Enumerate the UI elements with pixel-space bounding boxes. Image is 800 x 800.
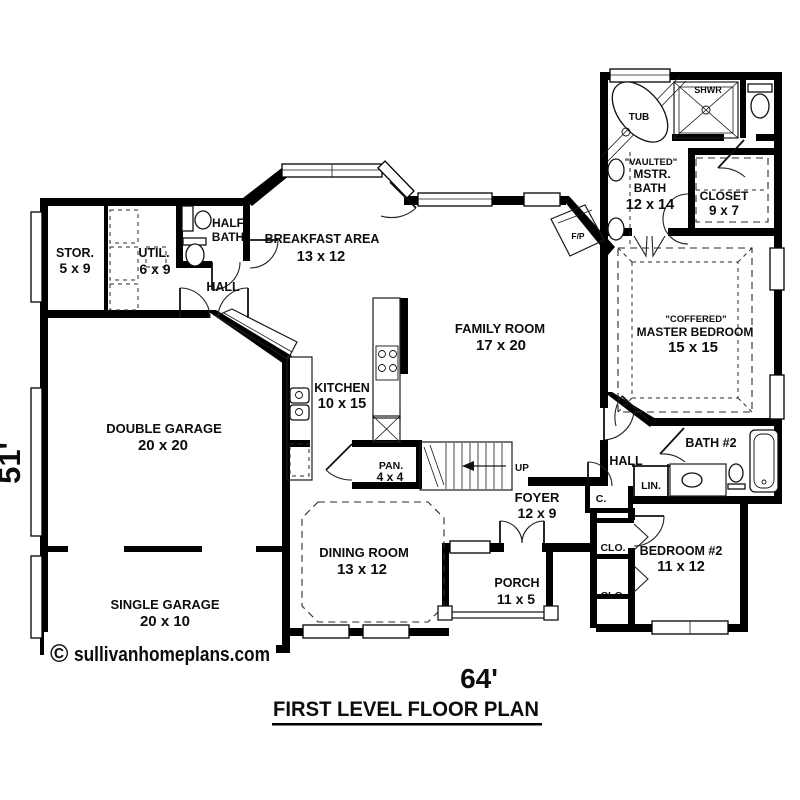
vanity-sink-icon — [608, 159, 624, 181]
floor-plan-page: STOR. 5 x 9 UTIL. 6 x 9 HALF BATH HALL B… — [0, 0, 800, 800]
wall-segment — [590, 554, 634, 559]
garage-header-dash — [256, 546, 284, 552]
window — [303, 625, 349, 638]
window — [450, 541, 490, 553]
wall-segment — [352, 440, 422, 447]
door-front-entry — [500, 521, 544, 543]
room-label-linen: LIN. — [641, 480, 661, 492]
room-label-mstr-bath-2: BATH — [634, 181, 666, 195]
wall-segment — [528, 477, 608, 486]
wall-segment — [104, 206, 108, 310]
wall-segment — [740, 504, 748, 632]
room-dims-stor: 5 x 9 — [59, 260, 90, 276]
kitchen-counters — [216, 298, 400, 480]
porch-structure — [438, 606, 558, 620]
door-pantry — [326, 444, 352, 480]
wall-segment — [650, 418, 782, 426]
room-label-double-garage: DOUBLE GARAGE — [106, 421, 222, 436]
wall-segment — [774, 72, 782, 134]
fixture-label-up: UP — [515, 463, 529, 474]
wall-segment — [40, 198, 250, 206]
room-dims-mstr-bath: 12 x 14 — [626, 197, 674, 213]
toilet-icon — [729, 464, 743, 482]
room-label-bedroom2: BEDROOM #2 — [640, 544, 723, 558]
window — [770, 375, 784, 419]
garage-header-dash — [44, 546, 68, 552]
page-title: FIRST LEVEL FLOOR PLAN — [273, 698, 539, 721]
room-label-porch: PORCH — [494, 576, 539, 590]
door-bath2 — [660, 428, 685, 462]
window — [418, 193, 492, 206]
wall-segment — [416, 440, 422, 489]
window — [770, 248, 784, 290]
wall-segment — [628, 486, 633, 512]
room-dims-breakfast: 13 x 12 — [297, 249, 345, 265]
room-label-dining: DINING ROOM — [319, 545, 409, 560]
room-label-clo-lower: CLO. — [600, 590, 625, 602]
room-label-util: UTIL. — [138, 246, 169, 260]
room-dims-bedroom2: 11 x 12 — [657, 559, 705, 575]
room-label-closet: CLOSET — [700, 189, 749, 203]
room-label-half-bath-1: HALF — [212, 216, 244, 230]
room-dims-porch: 11 x 5 — [497, 591, 535, 607]
wall-segment — [604, 392, 656, 427]
room-dims-dining: 13 x 12 — [337, 561, 387, 578]
wall-segment — [590, 508, 597, 628]
room-dims-foyer: 12 x 9 — [518, 505, 557, 521]
wall-segment — [282, 440, 310, 447]
door-bedroom2 — [634, 516, 664, 546]
toilet-icon — [748, 84, 772, 92]
door-master-bedroom-double — [634, 236, 665, 256]
kitchen-sink-icon — [290, 388, 309, 403]
room-label-family: FAMILY ROOM — [455, 321, 545, 336]
wall-segment — [542, 543, 597, 552]
sink-icon — [182, 206, 193, 231]
room-dims-family: 17 x 20 — [476, 337, 526, 354]
door-closet-bifold — [634, 524, 648, 592]
room-label-breakfast: BREAKFAST AREA — [265, 232, 380, 246]
wall-segment — [282, 356, 290, 648]
wall-segment — [590, 518, 634, 523]
door-family-hall — [604, 408, 634, 440]
wall-segment — [688, 228, 782, 236]
stairs — [420, 442, 512, 490]
porch-column — [438, 606, 452, 620]
half-bath-fixtures — [182, 206, 211, 266]
wall-segment — [40, 310, 210, 318]
fixture-label-tub: TUB — [629, 112, 650, 123]
window — [31, 388, 42, 536]
title-underline — [272, 723, 542, 726]
porch-column — [544, 606, 558, 620]
watermark-text: sullivanhomeplans.com — [74, 644, 270, 666]
fixture-label-shower: SHWR — [694, 85, 722, 95]
dishwasher-icon — [290, 444, 309, 476]
room-label-hall-left: HALL — [206, 280, 240, 294]
room-label-foyer: FOYER — [515, 490, 560, 505]
sink-icon — [682, 473, 702, 487]
fixture-label-fireplace: F/P — [571, 231, 585, 241]
room-dims-master: 15 x 15 — [668, 339, 718, 356]
wall-segment — [756, 134, 782, 141]
room-label-single-garage: SINGLE GARAGE — [110, 597, 219, 612]
wall-segment — [630, 496, 782, 504]
washer-dryer-icons — [110, 210, 166, 310]
wall-segment — [740, 78, 746, 138]
wall-segment — [688, 148, 695, 235]
room-label-kitchen: KITCHEN — [314, 381, 370, 395]
window — [378, 161, 414, 198]
room-dims-util: 6 x 9 — [139, 261, 170, 277]
room-label-master: MASTER BEDROOM — [637, 325, 754, 339]
room-label-bath2: BATH #2 — [685, 436, 736, 450]
room-label-half-bath-2: BATH — [212, 230, 244, 244]
room-dims-kitchen: 10 x 15 — [318, 396, 366, 412]
wall-segment — [628, 548, 635, 628]
dimension-height: 51' — [0, 442, 27, 484]
room-label-hall-right: HALL — [609, 454, 643, 468]
floor-plan-svg: STOR. 5 x 9 UTIL. 6 x 9 HALF BATH HALL B… — [0, 0, 800, 800]
window — [524, 193, 560, 206]
wall-segment — [600, 440, 608, 480]
wall-segment — [400, 298, 408, 374]
room-label-mstr-bath-1: MSTR. — [633, 167, 670, 181]
room-dims-double-garage: 20 x 20 — [138, 437, 188, 454]
stairs-arrowhead — [462, 461, 474, 471]
room-dims-single-garage: 20 x 10 — [140, 613, 190, 630]
room-label-closet-c: C. — [596, 493, 607, 505]
dimension-width: 64' — [460, 663, 498, 694]
room-label-stor: STOR. — [56, 246, 94, 260]
room-label-clo-upper: CLO. — [600, 542, 625, 554]
window — [610, 69, 670, 82]
room-dims-pantry: 4 x 4 — [377, 470, 404, 484]
annotation-layer: 51' 64' © sullivanhomeplans.com FIRST LE… — [0, 442, 542, 725]
window — [31, 212, 42, 302]
garage-header-dash — [124, 546, 202, 552]
vanity-sink-icon — [608, 218, 624, 240]
copyright-icon: © — [50, 640, 69, 668]
room-dims-closet: 9 x 7 — [709, 203, 739, 218]
room-label-master-q: "COFFERED" — [665, 314, 726, 325]
window — [363, 625, 409, 638]
wall-segment — [585, 508, 633, 513]
window — [31, 556, 42, 638]
